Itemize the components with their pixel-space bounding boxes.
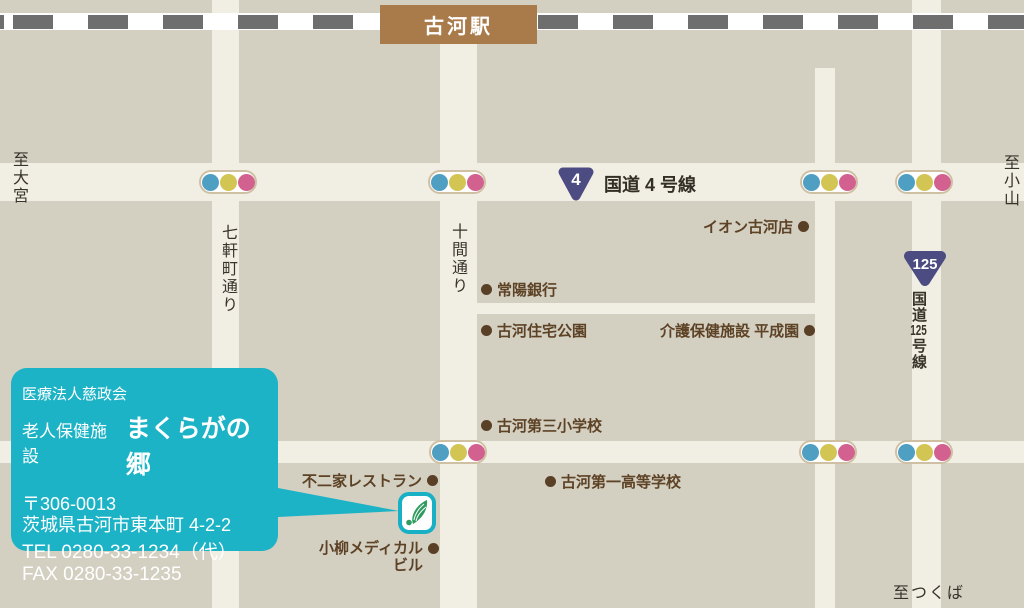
landmark-label: 小柳メディカル [319, 540, 423, 557]
landmark-dot [545, 476, 556, 487]
signal-pink-dot [934, 174, 951, 191]
signal-pink-dot [839, 174, 856, 191]
signal-blue-dot [432, 444, 449, 461]
access-map: 古河駅 4 国道 4 号線 125 国道125号線 七軒町通り 十間通り 至大宮… [0, 0, 1024, 608]
landmark-label: 古河第三小学校 [497, 415, 602, 436]
landmark-heiseien: 介護保健施設 平成園 [660, 320, 815, 341]
station-name: 古河駅 [424, 10, 493, 39]
facility-marker [398, 492, 436, 534]
landmark-label: 古河第一高等学校 [561, 471, 681, 492]
signal-blue-dot [898, 174, 915, 191]
traffic-light [800, 170, 858, 194]
route4-label: 国道 4 号線 [604, 171, 696, 197]
street-name-shichikencho: 七軒町通り [215, 224, 239, 314]
facility-type: 老人保健施設 [22, 417, 119, 467]
route4-shield-number: 4 [571, 170, 581, 189]
signal-pink-dot [468, 444, 485, 461]
signal-pink-dot [838, 444, 855, 461]
landmark-label: 常陽銀行 [497, 279, 557, 300]
landmark-koga-jutaku-park: 古河住宅公園 [481, 320, 587, 341]
route125-label: 国道125号線 [908, 291, 929, 370]
landmark-label: 古河住宅公園 [497, 320, 587, 341]
signal-yellow-dot [220, 174, 237, 191]
landmark-daisan-elementary: 古河第三小学校 [481, 415, 602, 436]
signal-yellow-dot [449, 174, 466, 191]
traffic-light [799, 440, 857, 464]
facility-organization: 医療法人慈政会 [22, 386, 268, 404]
street-name-jukken: 十間通り [445, 223, 469, 295]
signal-pink-dot [467, 174, 484, 191]
signal-yellow-dot [820, 444, 837, 461]
landmark-dot [481, 325, 492, 336]
road-route4 [0, 163, 1024, 201]
facility-address: 茨城県古河市東本町 4-2-2 [22, 515, 268, 536]
facility-tel: TEL 0280-33-1234（代） [22, 542, 268, 564]
signal-blue-dot [802, 444, 819, 461]
landmark-koyanagi-medical: 小柳メディカル ビル [312, 540, 439, 574]
landmark-label: イオン古河店 [703, 216, 793, 237]
route125-shield-icon: 125 [901, 247, 949, 289]
direction-south: 至つくば [893, 579, 965, 603]
signal-blue-dot [898, 444, 915, 461]
facility-postal-code: 〒306-0013 [22, 494, 268, 515]
landmark-dot [481, 420, 492, 431]
landmark-ion-koga: イオン古河店 [703, 216, 809, 237]
landmark-dot [427, 475, 438, 486]
signal-pink-dot [238, 174, 255, 191]
info-box-pointer [270, 483, 405, 523]
landmark-dot [804, 325, 815, 336]
facility-logo-leaf-icon [404, 498, 430, 528]
facility-name: まくらがの郷 [126, 409, 268, 481]
signal-yellow-dot [450, 444, 467, 461]
landmark-dot [481, 284, 492, 295]
facility-info-box: 医療法人慈政会 老人保健施設 まくらがの郷 〒306-0013 茨城県古河市東本… [11, 368, 278, 551]
landmark-daiichi-highschool: 古河第一高等学校 [545, 471, 681, 492]
traffic-light [199, 170, 257, 194]
signal-pink-dot [934, 444, 951, 461]
road-horizontal-thin [440, 303, 835, 314]
traffic-light [428, 170, 486, 194]
road-narrow-vertical [815, 68, 835, 608]
landmark-label-line2: ビル [393, 557, 423, 574]
signal-blue-dot [202, 174, 219, 191]
route4-shield-icon: 4 [556, 163, 596, 203]
signal-yellow-dot [821, 174, 838, 191]
station-label: 古河駅 [380, 5, 537, 44]
direction-west: 至大宮 [6, 151, 30, 205]
signal-blue-dot [803, 174, 820, 191]
traffic-light [895, 440, 953, 464]
landmark-dot [428, 543, 439, 554]
landmark-joyo-bank: 常陽銀行 [481, 279, 557, 300]
signal-yellow-dot [916, 444, 933, 461]
direction-east: 至小山 [997, 154, 1021, 208]
landmark-dot [798, 221, 809, 232]
landmark-label: 介護保健施設 平成園 [660, 320, 799, 341]
facility-fax: FAX 0280-33-1235 [22, 564, 268, 586]
route125-shield-number: 125 [912, 256, 937, 273]
signal-blue-dot [431, 174, 448, 191]
traffic-light [895, 170, 953, 194]
signal-yellow-dot [916, 174, 933, 191]
traffic-light [429, 440, 487, 464]
